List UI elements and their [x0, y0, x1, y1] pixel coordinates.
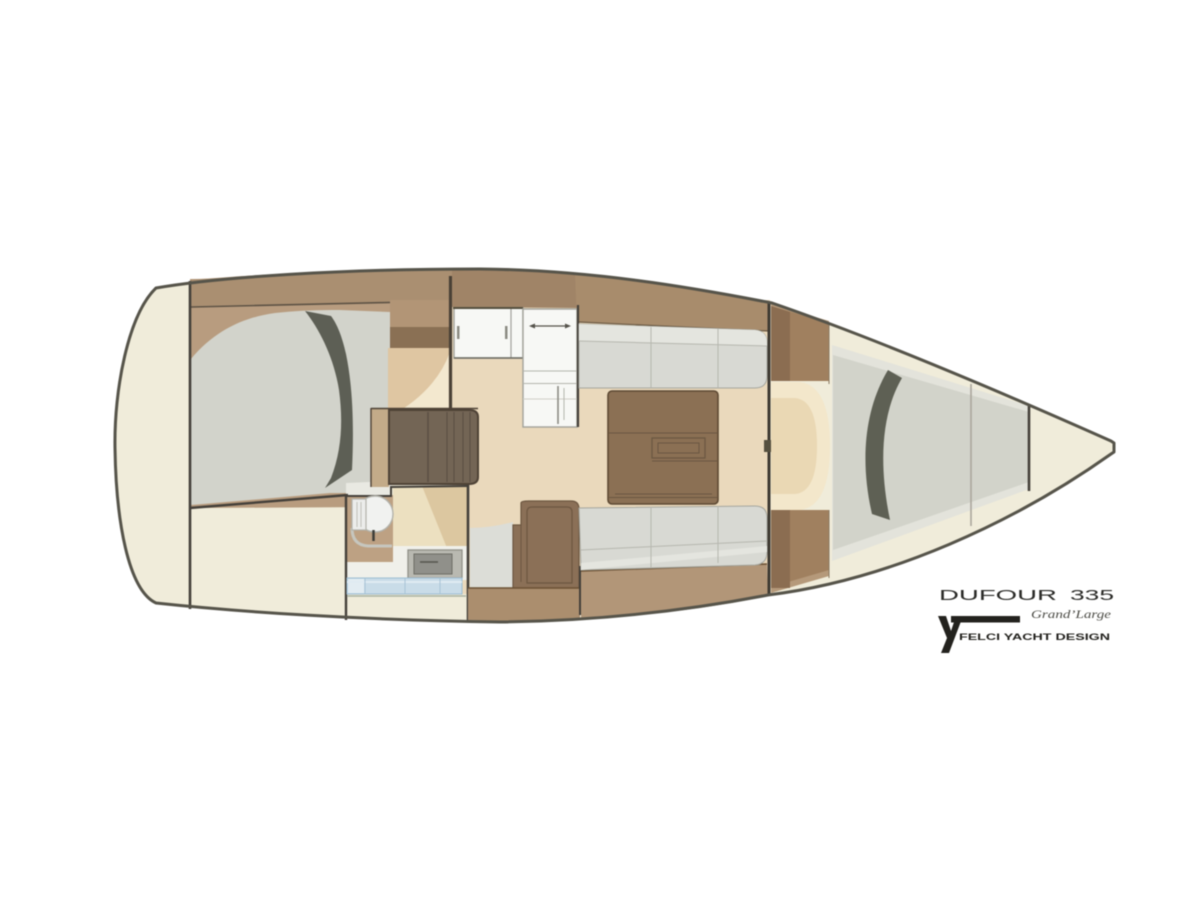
svg-text:FELCI YACHT DESIGN: FELCI YACHT DESIGN	[959, 632, 1110, 642]
svg-text:Grand’Large: Grand’Large	[1031, 609, 1111, 621]
svg-text:DUFOUR: DUFOUR	[939, 587, 1057, 604]
svg-text:335: 335	[1070, 587, 1114, 604]
